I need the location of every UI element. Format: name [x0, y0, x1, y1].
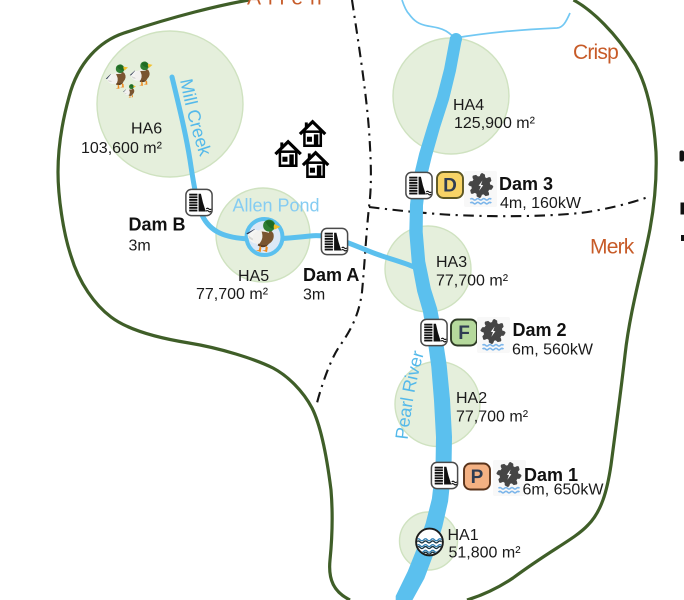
svg-text:77,700 m²: 77,700 m² — [196, 286, 269, 303]
svg-text:125,900 m²: 125,900 m² — [454, 115, 536, 132]
svg-text:Merk: Merk — [590, 236, 635, 259]
svg-text:4m, 160kW: 4m, 160kW — [500, 195, 582, 212]
svg-text:Dam B: Dam B — [129, 215, 186, 235]
svg-text:Dam 3: Dam 3 — [499, 174, 553, 194]
svg-text:3m: 3m — [129, 238, 151, 255]
svg-text:77,700 m²: 77,700 m² — [436, 273, 509, 290]
svg-text:HA5: HA5 — [238, 268, 269, 285]
svg-text:Allen Pond: Allen Pond — [233, 196, 320, 216]
svg-text:51,800 m²: 51,800 m² — [449, 545, 522, 562]
svg-text:3m: 3m — [303, 287, 325, 304]
svg-text:103,600 m²: 103,600 m² — [81, 140, 163, 157]
svg-text:Allen: Allen — [247, 0, 329, 10]
svg-text:P: P — [471, 467, 484, 488]
svg-text:Crisp: Crisp — [573, 41, 618, 64]
svg-text:77,700 m²: 77,700 m² — [456, 409, 529, 426]
svg-text:HA3: HA3 — [436, 254, 467, 271]
svg-text:Dam 2: Dam 2 — [513, 320, 567, 340]
svg-text:6m, 560kW: 6m, 560kW — [512, 342, 594, 359]
svg-text:D: D — [443, 176, 457, 197]
svg-text:6m, 650kW: 6m, 650kW — [523, 482, 605, 499]
svg-text:HA2: HA2 — [456, 390, 487, 407]
svg-text:HA4: HA4 — [453, 97, 484, 114]
svg-text:HA6: HA6 — [131, 121, 162, 138]
svg-text:F: F — [458, 323, 470, 344]
svg-text:HA1: HA1 — [448, 527, 479, 544]
svg-text:Dam A: Dam A — [303, 265, 359, 285]
